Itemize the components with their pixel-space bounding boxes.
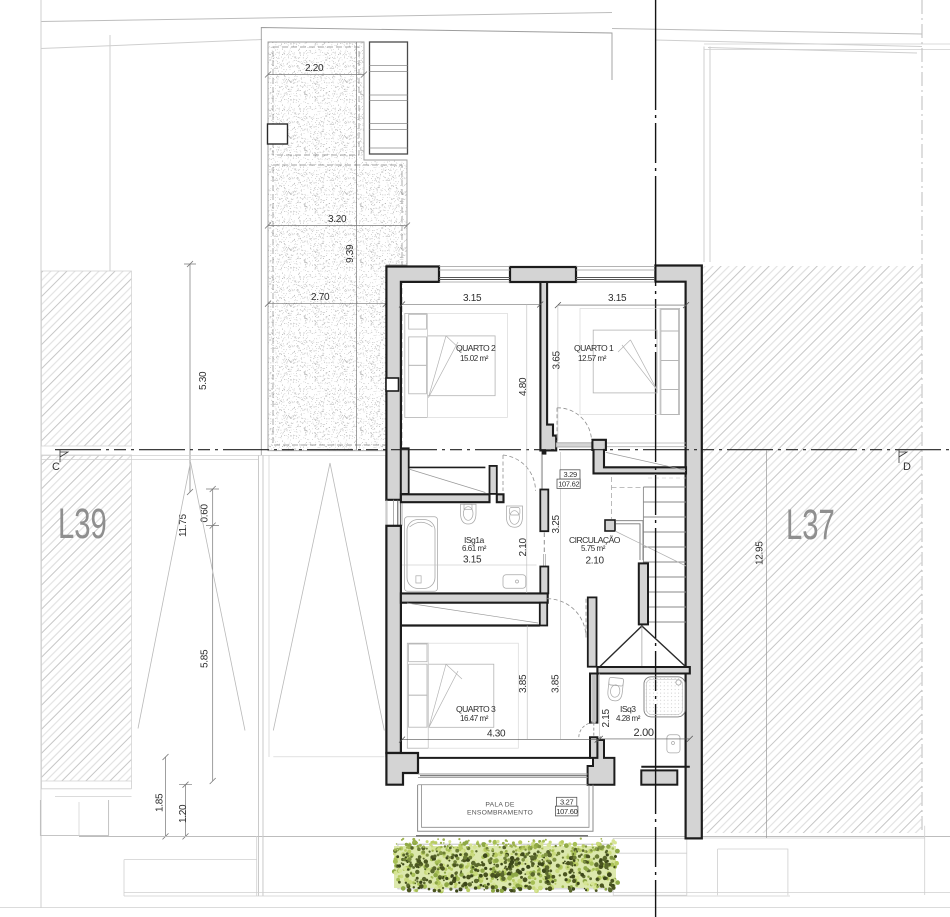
svg-text:12.57 m²: 12.57 m² bbox=[578, 354, 607, 363]
svg-text:ISq3: ISq3 bbox=[620, 704, 636, 714]
svg-text:ENSOMBRAMENTO: ENSOMBRAMENTO bbox=[467, 810, 533, 817]
svg-text:2.00: 2.00 bbox=[634, 727, 654, 739]
svg-text:1.85: 1.85 bbox=[155, 793, 166, 812]
svg-text:5.75 m²: 5.75 m² bbox=[581, 544, 606, 553]
svg-text:107.62: 107.62 bbox=[558, 480, 579, 489]
svg-text:3.29: 3.29 bbox=[564, 470, 578, 479]
svg-text:3.20: 3.20 bbox=[328, 214, 347, 225]
svg-text:C: C bbox=[52, 461, 60, 473]
svg-text:3.27: 3.27 bbox=[560, 798, 574, 807]
svg-text:2.20: 2.20 bbox=[305, 63, 324, 74]
svg-text:QUARTO 1: QUARTO 1 bbox=[574, 343, 614, 353]
svg-text:L37: L37 bbox=[786, 500, 835, 548]
svg-text:9.39: 9.39 bbox=[345, 244, 356, 263]
svg-text:5.30: 5.30 bbox=[198, 371, 209, 390]
svg-text:4.80: 4.80 bbox=[518, 377, 529, 396]
svg-text:2.10: 2.10 bbox=[518, 537, 529, 556]
svg-text:3.15: 3.15 bbox=[463, 555, 482, 566]
svg-text:PALA DE: PALA DE bbox=[485, 802, 514, 809]
svg-text:15.02 m²: 15.02 m² bbox=[460, 354, 489, 363]
svg-text:107.60: 107.60 bbox=[556, 807, 577, 816]
svg-text:D: D bbox=[903, 461, 911, 473]
svg-text:6.61 m²: 6.61 m² bbox=[462, 544, 487, 553]
svg-text:4.28 m²: 4.28 m² bbox=[616, 714, 641, 723]
svg-text:1.20: 1.20 bbox=[178, 804, 189, 823]
svg-text:4.30: 4.30 bbox=[487, 729, 506, 740]
svg-text:12.95: 12.95 bbox=[755, 541, 766, 565]
svg-text:2.15: 2.15 bbox=[601, 708, 612, 727]
svg-text:L39: L39 bbox=[58, 499, 107, 547]
svg-text:3.85: 3.85 bbox=[518, 674, 529, 693]
svg-text:3.65: 3.65 bbox=[552, 350, 563, 369]
svg-text:3.85: 3.85 bbox=[551, 674, 562, 693]
svg-text:5.85: 5.85 bbox=[200, 649, 211, 668]
svg-text:16.47 m²: 16.47 m² bbox=[460, 714, 489, 723]
svg-text:QUARTO 2: QUARTO 2 bbox=[456, 343, 496, 353]
svg-text:QUARTO 3: QUARTO 3 bbox=[456, 704, 496, 714]
svg-text:3.15: 3.15 bbox=[608, 293, 627, 304]
svg-text:2.70: 2.70 bbox=[311, 292, 330, 303]
svg-text:3.15: 3.15 bbox=[463, 293, 482, 304]
svg-text:2.10: 2.10 bbox=[586, 556, 605, 567]
